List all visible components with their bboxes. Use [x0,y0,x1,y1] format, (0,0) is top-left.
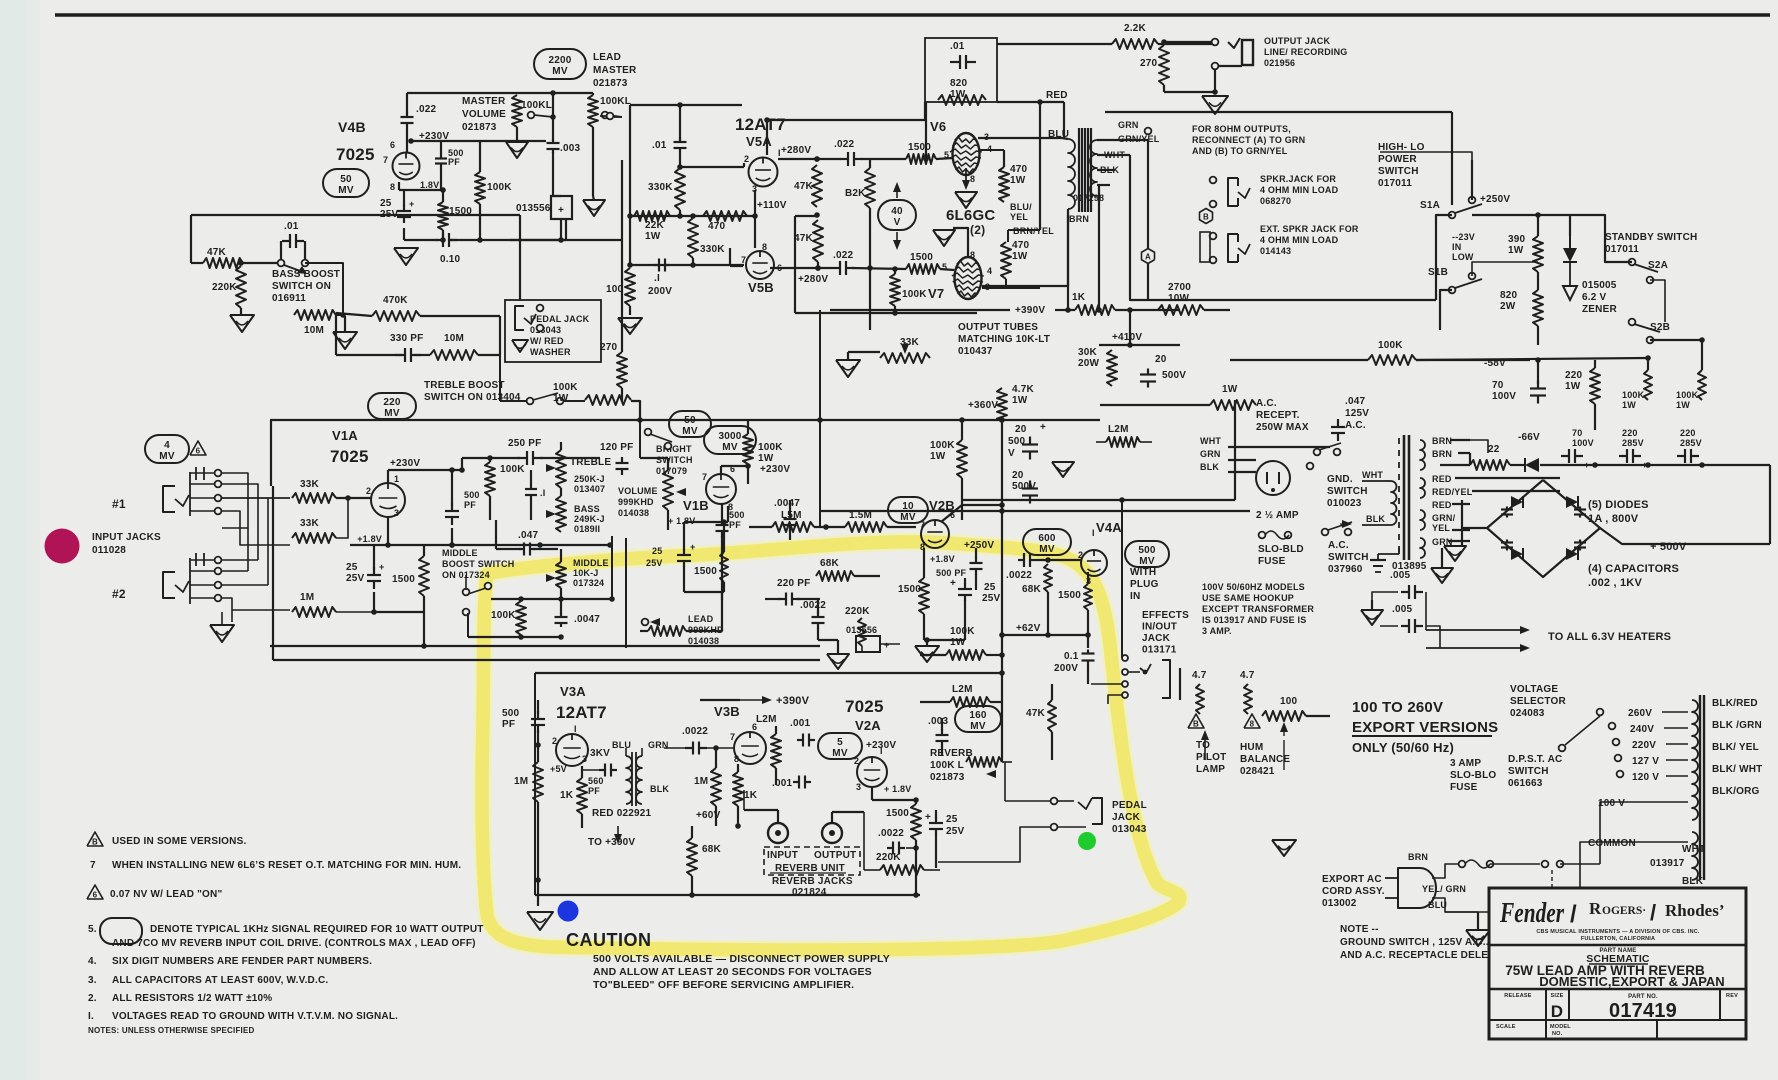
svg-text:BRIGHT: BRIGHT [656,444,692,454]
svg-text:WHT: WHT [1682,844,1705,855]
svg-text:100K: 100K [758,442,783,453]
svg-text:PF: PF [588,786,600,796]
svg-text:BLK/ WHT: BLK/ WHT [1712,764,1762,775]
svg-text:4 OHM MIN LOAD: 4 OHM MIN LOAD [1260,185,1339,195]
svg-text:014143: 014143 [1260,246,1291,256]
svg-text:MV: MV [682,426,698,437]
svg-text:010437: 010437 [958,346,993,357]
svg-text:017324: 017324 [573,578,604,588]
svg-text:10M: 10M [444,333,464,344]
svg-text:017079: 017079 [656,466,687,476]
svg-text:PF: PF [448,157,460,167]
svg-text:LEAD: LEAD [593,52,621,63]
svg-text:4.7K: 4.7K [1012,384,1035,395]
svg-text:1W: 1W [950,637,966,648]
svg-text:.047: .047 [518,530,539,541]
svg-text:V3A: V3A [560,684,586,699]
svg-text:USE SAME HOOKUP: USE SAME HOOKUP [1202,593,1294,603]
svg-text:220: 220 [1622,428,1638,438]
svg-text:+250V: +250V [964,540,994,551]
svg-text:30K: 30K [1078,347,1098,358]
svg-text:RELEASE: RELEASE [1504,993,1532,999]
svg-text:100K: 100K [487,182,512,193]
svg-text:.005: .005 [1392,604,1413,615]
svg-text:RED: RED [1432,500,1452,510]
svg-text:470: 470 [1010,164,1028,175]
svg-text:20: 20 [1155,354,1167,365]
svg-text:BLK: BLK [1682,876,1704,887]
svg-text:L5M: L5M [781,510,802,521]
svg-text:FUSE: FUSE [1450,782,1478,793]
svg-text:100V: 100V [1572,438,1594,448]
svg-text:285V: 285V [1680,438,1702,448]
svg-text:013171: 013171 [1142,645,1177,656]
svg-text:V4A: V4A [1096,520,1122,535]
svg-text:USED IN SOME VERSIONS.: USED IN SOME VERSIONS. [112,836,246,847]
svg-text:50: 50 [340,174,352,185]
svg-text:(4) CAPACITORS: (4) CAPACITORS [1588,563,1679,575]
svg-text:LAMP: LAMP [1196,764,1225,775]
svg-text:999KHD: 999KHD [618,497,654,507]
svg-text:25V: 25V [982,593,1001,604]
svg-text:V1B: V1B [683,498,709,513]
svg-text:.047: .047 [1345,396,1366,407]
svg-text:SELECTOR: SELECTOR [1510,696,1566,707]
svg-text:249K-J: 249K-J [574,514,605,524]
svg-text:PLUG: PLUG [1130,579,1159,590]
svg-text:MIDDLE: MIDDLE [442,548,478,558]
svg-text:1W: 1W [1508,245,1524,256]
svg-text:V6: V6 [930,119,946,134]
svg-text:68K: 68K [1022,584,1042,595]
svg-text:70: 70 [1492,380,1504,391]
svg-text:260V: 260V [1628,708,1652,719]
svg-text:7: 7 [702,472,707,482]
svg-text:VOLUME: VOLUME [618,486,658,496]
svg-text:470: 470 [708,221,726,232]
svg-text:BOOST SWITCH: BOOST SWITCH [442,559,514,569]
svg-text:BLK: BLK [650,784,669,794]
svg-text:/: / [1650,900,1656,925]
svg-text:/: / [1570,901,1577,928]
svg-text:PF: PF [502,719,515,730]
svg-text:3: 3 [1086,576,1091,586]
svg-text:4.7: 4.7 [1240,670,1255,681]
svg-text:.003: .003 [560,143,581,154]
svg-text:100V: 100V [1492,391,1516,402]
svg-text:EXT. SPKR JACK FOR: EXT. SPKR JACK FOR [1260,224,1359,234]
svg-text:EFFECTS: EFFECTS [1142,610,1189,621]
svg-text:WHT: WHT [1104,150,1125,160]
svg-text:1W: 1W [1565,381,1581,392]
svg-text:500: 500 [729,510,745,520]
svg-text:+1.8V: +1.8V [357,534,382,544]
svg-text:+280V: +280V [781,145,811,156]
svg-text:100K: 100K [491,610,516,621]
svg-text:70: 70 [1572,428,1582,438]
svg-text:220K: 220K [212,282,237,293]
svg-text:SPKR.JACK FOR: SPKR.JACK FOR [1260,174,1336,184]
svg-text:390: 390 [1508,234,1526,245]
svg-text:B: B [1193,720,1199,729]
svg-text:0.07 NV W/ LEAD "ON": 0.07 NV W/ LEAD "ON" [110,889,222,900]
svg-text:015005: 015005 [1582,280,1617,291]
svg-text:YEL/ GRN: YEL/ GRN [1422,884,1466,894]
svg-text:500 PF: 500 PF [936,568,967,578]
svg-text:010023: 010023 [1327,498,1362,509]
svg-text:OUTPUT: OUTPUT [814,850,856,861]
svg-text:100 V: 100 V [1598,798,1625,809]
svg-text:ALL RESISTORS 1/2 WATT ±10%: ALL RESISTORS 1/2 WATT ±10% [112,993,272,1004]
svg-text:MV: MV [159,451,175,462]
svg-text:2: 2 [854,756,859,766]
svg-text:-66V: -66V [1518,432,1540,443]
svg-text:013043: 013043 [1112,824,1147,835]
svg-text:TO"BLEED" OFF BEFORE SERVICING: TO"BLEED" OFF BEFORE SERVICING AMPLIFIER… [593,979,854,991]
svg-text:HUM: HUM [1240,742,1263,753]
svg-text:6: 6 [93,891,98,900]
svg-text:6: 6 [390,140,395,150]
svg-text:500: 500 [1138,545,1156,556]
svg-text:V5A: V5A [746,134,772,149]
svg-text:2.: 2. [88,993,97,1004]
svg-text:10K-J: 10K-J [573,568,599,578]
svg-text:+110V: +110V [757,200,787,211]
svg-text:270: 270 [600,342,618,353]
svg-text:2: 2 [552,736,557,746]
svg-text:8: 8 [1250,720,1255,729]
svg-text:0.10: 0.10 [440,254,461,265]
svg-text:1W: 1W [1622,400,1636,410]
svg-text:7: 7 [383,155,388,165]
svg-text:SWITCH: SWITCH [656,455,693,465]
svg-text:BRN/YEL: BRN/YEL [1013,226,1054,236]
svg-text:MASTER: MASTER [462,96,506,107]
svg-text:285V: 285V [1622,438,1644,448]
svg-text:SWITCH: SWITCH [1327,486,1368,497]
svg-text:.0047: .0047 [574,614,600,625]
svg-text:100KL: 100KL [600,96,631,107]
svg-text:013556: 013556 [516,203,551,214]
svg-text:017419: 017419 [1609,1000,1677,1022]
svg-text:100K L: 100K L [930,760,964,771]
svg-text:100K: 100K [930,440,955,451]
svg-text:+360V: +360V [968,400,998,411]
svg-text:021873: 021873 [593,78,628,89]
svg-text:1K: 1K [560,790,574,801]
svg-text:250 PF: 250 PF [508,438,541,449]
svg-text:3: 3 [394,508,399,518]
svg-text:V2A: V2A [855,718,881,733]
svg-text:MV: MV [1139,556,1155,567]
svg-text:+410V: +410V [1112,332,1142,343]
svg-text:V1A: V1A [332,428,358,443]
svg-text:061663: 061663 [1508,778,1543,789]
svg-text:SIZE: SIZE [1550,993,1563,999]
svg-text:VOLTAGES READ TO GROUND WITH V: VOLTAGES READ TO GROUND WITH V.T.V.M. NO… [112,1011,398,1022]
svg-text:LOW: LOW [1452,252,1474,262]
svg-text:100K: 100K [553,382,578,393]
svg-text:.01: .01 [284,221,299,232]
svg-text:MV: MV [338,185,354,196]
svg-text:1M: 1M [694,776,708,787]
svg-text:TREBLE BOOST: TREBLE BOOST [424,380,505,391]
svg-text:+: + [379,562,384,572]
svg-text:RED: RED [1046,90,1068,101]
svg-text:V3B: V3B [714,704,740,719]
svg-text:MATCHING 10K-LT: MATCHING 10K-LT [958,334,1050,345]
svg-text:127 V: 127 V [1632,756,1659,767]
svg-text:2: 2 [366,486,371,496]
svg-text:6.2 V: 6.2 V [1582,292,1606,303]
svg-text:.0022: .0022 [1006,570,1032,581]
svg-text:+280V: +280V [798,274,828,285]
svg-text:MV: MV [900,512,916,523]
svg-text:014038: 014038 [688,636,719,646]
svg-text:REVERB JACKS: REVERB JACKS [772,876,853,887]
svg-text:SLO-BLO: SLO-BLO [1450,770,1496,781]
svg-text:SWITCH: SWITCH [1378,166,1419,177]
svg-text:EXPORT VERSIONS: EXPORT VERSIONS [1352,719,1498,736]
svg-text:1W: 1W [1012,251,1028,262]
svg-text:POWER: POWER [1378,154,1417,165]
svg-text:7: 7 [730,732,735,742]
svg-text:7025: 7025 [336,145,375,164]
svg-text:200V: 200V [1054,663,1078,674]
svg-text:OUTPUT TUBES: OUTPUT TUBES [958,322,1038,333]
svg-text:V4B: V4B [338,119,366,135]
svg-text:LEAD: LEAD [688,614,714,624]
svg-text:0189II: 0189II [574,524,600,534]
svg-text:25: 25 [984,582,996,593]
svg-text:7: 7 [741,255,746,265]
svg-text:WASHER: WASHER [530,347,571,357]
svg-text:V: V [894,217,901,228]
svg-text:25V: 25V [346,573,365,584]
svg-text:WHEN INSTALLING NEW 6L6’S RESE: WHEN INSTALLING NEW 6L6’S RESET O.T. MAT… [112,860,461,871]
svg-text:3000: 3000 [718,431,741,442]
svg-text:I: I [880,746,883,756]
svg-text:Fender: Fender [1499,897,1564,929]
svg-text:I: I [1092,528,1095,538]
svg-text:TO: TO [1196,740,1210,751]
svg-text:ZENER: ZENER [1582,304,1617,315]
svg-text:BRN: BRN [1408,852,1428,862]
svg-text:1W: 1W [553,393,569,404]
svg-text:D.P.S.T. AC: D.P.S.T. AC [1508,754,1562,765]
svg-text:V: V [1008,448,1015,459]
svg-text:+: + [1040,422,1046,433]
svg-text:A.C.: A.C. [1328,540,1349,551]
svg-text:MIDDLE: MIDDLE [573,558,609,568]
svg-text:011028: 011028 [92,545,126,556]
svg-text:120 V: 120 V [1632,772,1659,783]
svg-text:+230V: +230V [760,464,790,475]
svg-text:.01: .01 [950,41,965,52]
svg-text:AND ALLOW AT LEAST 20 SECONDS: AND ALLOW AT LEAST 20 SECONDS FOR VOLTAG… [593,966,872,978]
svg-text:200V: 200V [648,286,672,297]
svg-text:3KV: 3KV [590,748,610,759]
svg-text:SWITCH: SWITCH [1328,552,1369,563]
svg-text:100K: 100K [1676,390,1699,400]
svg-text:1W: 1W [930,451,946,462]
svg-text:820: 820 [1500,290,1518,301]
svg-text:IS 013917 AND FUSE IS: IS 013917 AND FUSE IS [1202,615,1306,625]
svg-text:2W: 2W [1500,301,1516,312]
svg-text:(2): (2) [970,223,985,237]
svg-text:470: 470 [1012,240,1030,251]
svg-text:BLK/ORG: BLK/ORG [1712,786,1760,797]
svg-text:RECONNECT (A) TO GRN: RECONNECT (A) TO GRN [1192,135,1305,145]
svg-text:REV: REV [1726,993,1738,999]
svg-text:2 ½ AMP: 2 ½ AMP [1256,510,1299,521]
svg-text:1K: 1K [744,790,758,801]
svg-text:I: I [574,724,577,734]
svg-text:.0022: .0022 [878,828,904,839]
svg-text:AND 7CO MV REVERB INPUT COIL: AND 7CO MV REVERB INPUT COIL DRIVE. (CON… [112,938,476,949]
svg-text:1500: 1500 [1058,590,1081,601]
svg-text:4 OHM MIN LOAD: 4 OHM MIN LOAD [1260,235,1339,245]
svg-text:PF: PF [464,500,476,510]
svg-text:RECEPT.: RECEPT. [1256,410,1300,421]
svg-text:MV: MV [552,66,568,77]
svg-text:BLU/: BLU/ [1010,202,1032,212]
svg-text:600: 600 [1038,533,1056,544]
svg-text:+230V: +230V [390,458,420,469]
svg-text:12AT7: 12AT7 [735,115,786,134]
svg-text:1: 1 [394,474,399,484]
svg-text:WHT: WHT [1362,470,1383,480]
svg-text:240V: 240V [1630,724,1654,735]
svg-text:8: 8 [762,242,767,252]
svg-text:B2K: B2K [845,188,866,199]
svg-text:YEL: YEL [1010,212,1028,222]
svg-text:8: 8 [970,174,975,184]
svg-text:BLK/RED: BLK/RED [1712,698,1758,709]
svg-text:MASTER: MASTER [593,65,637,76]
svg-text:250W MAX: 250W MAX [1256,422,1309,433]
svg-text:IN/OUT: IN/OUT [1142,622,1177,633]
svg-text:028421: 028421 [1240,766,1275,777]
svg-text:PF: PF [729,520,741,530]
svg-text:ALL CAPACITORS AT LEAST 600V,: ALL CAPACITORS AT LEAST 600V, W.V.D.C. [112,975,328,986]
svg-text:VOLTAGE: VOLTAGE [1510,684,1558,695]
svg-text:1500: 1500 [898,584,921,595]
svg-text:TREBLE: TREBLE [570,457,611,468]
svg-text:GND.: GND. [1327,474,1353,485]
svg-text:100K: 100K [950,626,975,637]
svg-text:INPUT: INPUT [767,850,798,861]
svg-text:12AT7: 12AT7 [556,703,607,722]
svg-text:3 AMP: 3 AMP [1450,758,1481,769]
svg-text:4: 4 [164,440,170,451]
svg-text:3: 3 [985,282,990,292]
svg-text:WITH: WITH [1130,567,1156,578]
svg-text:25: 25 [380,198,392,209]
svg-text:47K: 47K [794,181,814,192]
svg-text:#2: #2 [112,587,126,601]
svg-text:GRN/: GRN/ [1432,513,1456,523]
svg-text:MV: MV [1039,544,1055,555]
svg-text:BASS: BASS [574,504,600,514]
svg-text:25: 25 [652,546,662,556]
svg-text:.0047: .0047 [774,498,800,509]
svg-text:.022: .022 [833,250,854,261]
svg-text:+60V: +60V [696,810,721,821]
svg-text:100K: 100K [1378,340,1403,351]
svg-text:1W: 1W [1012,395,1028,406]
svg-text:BRN: BRN [1432,436,1452,446]
svg-text:500V: 500V [1012,481,1036,492]
svg-text:5.: 5. [88,924,97,935]
svg-text:BLK /GRN: BLK /GRN [1712,720,1762,731]
svg-text:3.: 3. [88,975,97,986]
svg-text:7025: 7025 [845,697,884,716]
svg-text:CORD ASSY.: CORD ASSY. [1322,886,1385,897]
svg-text:021824: 021824 [792,887,827,898]
svg-text:SLO-BLD: SLO-BLD [1258,544,1304,555]
svg-text:50: 50 [684,415,696,426]
svg-text:TO ALL 6.3V HEATERS: TO ALL 6.3V HEATERS [1548,631,1671,643]
svg-text:2700: 2700 [1168,282,1191,293]
svg-text:EXCEPT TRANSFORMER: EXCEPT TRANSFORMER [1202,604,1314,614]
svg-text:100: 100 [606,284,624,295]
svg-text:GRN: GRN [1118,120,1139,130]
svg-text:1M: 1M [300,592,314,603]
svg-text:47K: 47K [1026,708,1046,719]
svg-text:014038: 014038 [618,508,649,518]
svg-text:.001: .001 [772,778,793,789]
svg-text:016911: 016911 [272,293,306,304]
svg-text:125V: 125V [1345,408,1369,419]
svg-text:COMMON: COMMON [1588,838,1636,849]
svg-text:2.2K: 2.2K [1124,23,1147,34]
svg-text:IN: IN [1130,591,1140,602]
svg-text:R: R [1589,899,1602,918]
svg-text:W/ RED: W/ RED [530,336,564,346]
svg-text:JACK: JACK [1142,633,1171,644]
svg-text:LINE/ RECORDING: LINE/ RECORDING [1264,47,1348,57]
svg-text:+250V: +250V [1480,194,1510,205]
svg-text:500: 500 [464,490,480,500]
svg-text:Rhodes’: Rhodes’ [1665,901,1725,920]
svg-text:B: B [1203,213,1209,222]
svg-text:+: + [925,812,931,823]
svg-text:NO.: NO. [1552,1031,1563,1037]
svg-text:MV: MV [832,748,848,759]
svg-text:RED 022921: RED 022921 [592,808,651,819]
svg-text:#1: #1 [112,497,126,511]
svg-text:3: 3 [582,754,587,764]
svg-text:BRN: BRN [1432,449,1452,459]
svg-text:IN: IN [1452,242,1461,252]
svg-text:PEDAL JACK: PEDAL JACK [530,314,590,324]
svg-text:25V: 25V [946,826,965,837]
svg-text:2200: 2200 [548,55,571,66]
svg-text:+390V: +390V [1015,305,1045,316]
svg-text:SWITCH ON: SWITCH ON [272,281,331,292]
svg-text:GRN: GRN [1200,449,1221,459]
svg-text:1W: 1W [645,231,661,242]
svg-text:BLK: BLK [1200,462,1219,472]
svg-text:.022: .022 [416,104,437,115]
svg-text:A: A [1145,253,1151,262]
svg-text:NOTES: UNLESS OTHERWISE SPECIF: NOTES: UNLESS OTHERWISE SPECIFIED [88,1026,254,1035]
svg-text:--23V: --23V [1452,232,1475,242]
svg-text:7: 7 [920,520,925,530]
svg-text:MV: MV [970,721,986,732]
svg-text:BLU: BLU [612,740,631,750]
